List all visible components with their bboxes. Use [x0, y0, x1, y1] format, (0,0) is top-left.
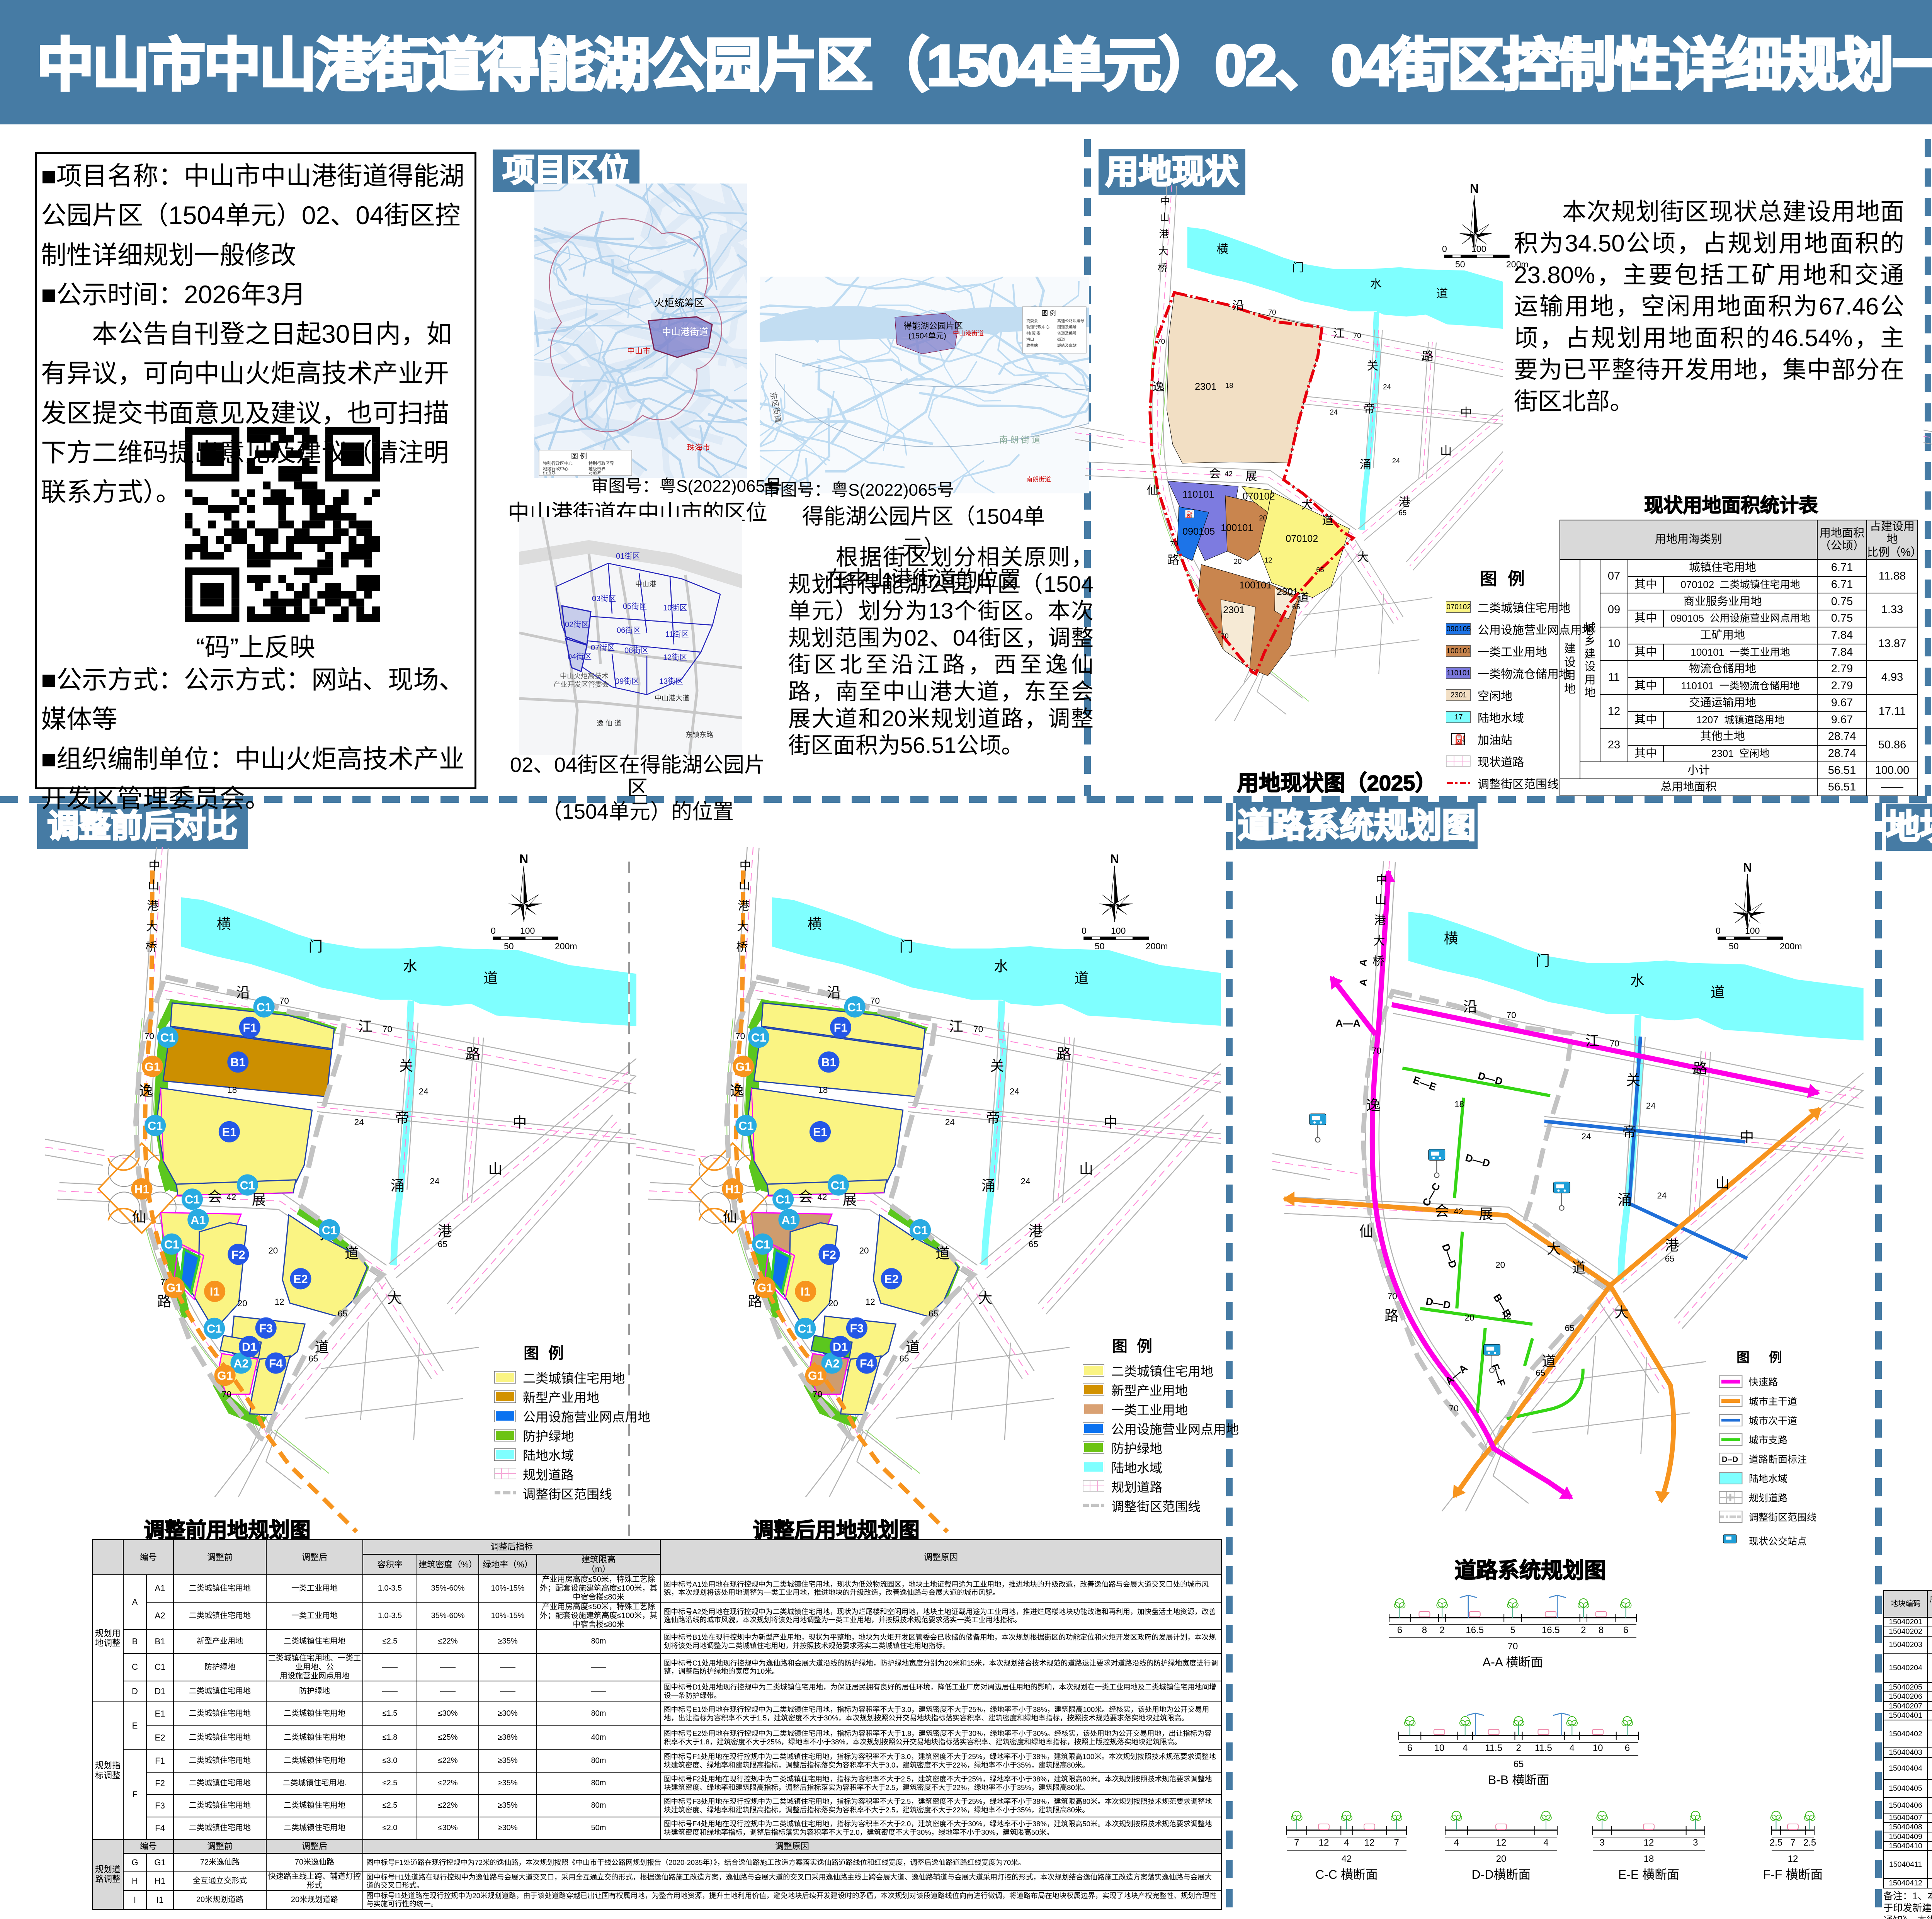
svg-text:110101: 110101 [1182, 489, 1214, 500]
svg-text:A1: A1 [781, 1214, 796, 1227]
svg-text:得能湖公园片区: 得能湖公园片区 [903, 321, 963, 331]
svg-text:D—D: D—D [1464, 1152, 1491, 1169]
svg-text:D--D: D--D [1722, 1455, 1738, 1464]
svg-text:逸 仙 道: 逸 仙 道 [597, 719, 621, 727]
svg-text:C1: C1 [160, 1031, 175, 1044]
svg-text:F4: F4 [269, 1357, 283, 1370]
svg-text:8: 8 [1599, 1625, 1604, 1635]
svg-text:12: 12 [1788, 1854, 1798, 1864]
svg-text:C1: C1 [207, 1322, 222, 1336]
svg-text:中山港: 中山港 [635, 580, 656, 588]
svg-text:2.5: 2.5 [1803, 1837, 1816, 1848]
svg-text:100101: 100101 [1239, 580, 1272, 591]
svg-text:E—E: E—E [1412, 1074, 1438, 1093]
svg-text:4: 4 [1454, 1837, 1459, 1848]
svg-text:70: 70 [1508, 1641, 1518, 1652]
svg-text:13街区: 13街区 [659, 677, 683, 686]
svg-text:C1: C1 [738, 1119, 753, 1132]
svg-text:中山火炬高技术: 中山火炬高技术 [560, 672, 609, 680]
svg-text:A: A [1357, 978, 1369, 987]
svg-text:H1: H1 [134, 1183, 149, 1196]
svg-text:F3: F3 [259, 1322, 273, 1335]
svg-text:(1504单元): (1504单元) [908, 331, 946, 340]
svg-text:F2: F2 [231, 1248, 245, 1261]
svg-text:F—F: F—F [1489, 1362, 1507, 1388]
svg-text:D-D横断面: D-D横断面 [1472, 1868, 1531, 1882]
svg-text:5: 5 [1510, 1625, 1515, 1635]
svg-text:10街区: 10街区 [663, 603, 687, 612]
svg-text:2: 2 [1581, 1625, 1586, 1635]
svg-text:12街区: 12街区 [663, 653, 687, 662]
svg-text:3: 3 [1599, 1837, 1604, 1848]
svg-text:G1: G1 [735, 1060, 751, 1073]
svg-text:中山港街道: 中山港街道 [662, 327, 708, 337]
svg-text:02街区: 02街区 [565, 620, 589, 629]
svg-text:F1: F1 [243, 1021, 257, 1034]
svg-text:A: A [1357, 958, 1369, 967]
svg-text:G1: G1 [217, 1369, 233, 1382]
svg-text:C1: C1 [257, 1001, 272, 1014]
svg-text:D1: D1 [242, 1340, 257, 1353]
svg-text:省道及编号: 省道及编号 [1057, 331, 1077, 336]
svg-text:3: 3 [1693, 1837, 1698, 1848]
svg-text:C1: C1 [148, 1119, 163, 1132]
svg-text:6: 6 [1623, 1625, 1628, 1635]
svg-text:6: 6 [1625, 1743, 1630, 1753]
svg-text:G1: G1 [166, 1281, 182, 1294]
svg-text:4: 4 [1344, 1837, 1349, 1848]
svg-text:2301: 2301 [1223, 605, 1245, 615]
svg-text:C1: C1 [831, 1179, 846, 1192]
svg-text:C1: C1 [240, 1179, 255, 1192]
svg-text:F3: F3 [850, 1322, 864, 1335]
svg-text:01街区: 01街区 [616, 552, 640, 561]
svg-text:7: 7 [1790, 1837, 1795, 1848]
svg-text:09街区: 09街区 [615, 677, 639, 686]
svg-text:03街区: 03街区 [592, 594, 616, 603]
svg-text:国道及编号: 国道及编号 [1057, 325, 1077, 330]
svg-text:4: 4 [1463, 1743, 1468, 1753]
svg-text:轨道行政中心: 轨道行政中心 [1026, 325, 1049, 330]
svg-text:B1: B1 [230, 1056, 245, 1069]
svg-text:城轨及车站: 城轨及车站 [1057, 343, 1077, 348]
svg-text:4: 4 [1543, 1837, 1548, 1848]
svg-text:F4: F4 [860, 1357, 874, 1370]
svg-text:H1: H1 [725, 1183, 740, 1196]
svg-text:C1: C1 [185, 1193, 200, 1206]
svg-text:E1: E1 [222, 1126, 236, 1139]
svg-text:C1: C1 [164, 1238, 179, 1251]
svg-text:特别行政区中心: 特别行政区中心 [543, 461, 573, 466]
svg-text:11.5: 11.5 [1535, 1743, 1552, 1753]
svg-text:⛽: ⛽ [1454, 734, 1466, 745]
svg-text:65: 65 [1514, 1759, 1524, 1769]
svg-text:图 例: 图 例 [1042, 310, 1056, 317]
svg-text:收费站: 收费站 [1026, 343, 1038, 348]
svg-text:南 朗 街 道: 南 朗 街 道 [999, 435, 1040, 445]
svg-text:E2: E2 [293, 1273, 308, 1286]
svg-text:C1: C1 [776, 1193, 791, 1206]
svg-text:G1: G1 [145, 1060, 160, 1073]
svg-text:G1: G1 [808, 1369, 824, 1382]
svg-text:070102: 070102 [1243, 491, 1275, 502]
svg-text:F1: F1 [834, 1021, 848, 1034]
svg-text:I1: I1 [210, 1285, 220, 1299]
svg-text:2: 2 [1439, 1625, 1444, 1635]
svg-text:E-E 横断面: E-E 横断面 [1618, 1868, 1679, 1882]
svg-text:8: 8 [1422, 1625, 1427, 1635]
svg-text:11街区: 11街区 [665, 630, 689, 639]
svg-text:⛽: ⛽ [1186, 511, 1193, 518]
svg-text:04街区: 04街区 [568, 652, 592, 661]
svg-text:11.5: 11.5 [1485, 1743, 1502, 1753]
svg-text:I1: I1 [801, 1285, 811, 1299]
svg-text:产业开发区管委会: 产业开发区管委会 [553, 681, 609, 688]
svg-text:7: 7 [1294, 1837, 1299, 1848]
svg-text:E2: E2 [884, 1273, 898, 1286]
svg-text:C1: C1 [913, 1224, 928, 1237]
svg-text:18: 18 [1644, 1854, 1654, 1864]
svg-text:C1: C1 [322, 1224, 337, 1237]
svg-text:090105: 090105 [1182, 526, 1215, 537]
svg-text:10: 10 [1434, 1743, 1445, 1753]
svg-text:070102: 070102 [1286, 533, 1318, 544]
svg-text:C-C 横断面: C-C 横断面 [1315, 1868, 1378, 1882]
svg-text:2: 2 [1516, 1743, 1521, 1753]
svg-text:珠海市: 珠海市 [687, 443, 710, 452]
svg-text:D—D: D—D [1440, 1242, 1459, 1270]
svg-text:12: 12 [1319, 1837, 1329, 1848]
svg-text:街道办: 街道办 [543, 470, 556, 475]
svg-text:06街区: 06街区 [617, 626, 641, 635]
svg-text:12: 12 [1364, 1837, 1375, 1848]
svg-text:F2: F2 [822, 1248, 836, 1261]
svg-text:中山市: 中山市 [627, 347, 650, 355]
svg-text:12: 12 [1496, 1837, 1507, 1848]
svg-text:D1: D1 [833, 1340, 848, 1353]
svg-text:G1: G1 [757, 1281, 773, 1294]
svg-text:C1: C1 [751, 1031, 766, 1044]
svg-text:火炬统筹区: 火炬统筹区 [654, 297, 704, 309]
svg-text:6: 6 [1407, 1743, 1412, 1753]
svg-text:20: 20 [1496, 1854, 1507, 1864]
svg-text:2.5: 2.5 [1770, 1837, 1782, 1848]
svg-text:东镇东路: 东镇东路 [685, 731, 713, 739]
svg-text:16.5: 16.5 [1466, 1625, 1484, 1635]
svg-text:C1: C1 [847, 1001, 862, 1014]
svg-text:100101: 100101 [1221, 523, 1253, 534]
svg-text:特别行政区界: 特别行政区界 [588, 461, 614, 466]
svg-text:B-B 横断面: B-B 横断面 [1488, 1773, 1549, 1787]
svg-text:12: 12 [1644, 1837, 1654, 1848]
svg-text:贷委会: 贷委会 [1026, 318, 1038, 323]
svg-text:E1: E1 [813, 1126, 827, 1139]
svg-text:07街区: 07街区 [591, 643, 615, 652]
svg-text:B1: B1 [821, 1056, 836, 1069]
svg-text:C1: C1 [798, 1322, 813, 1336]
svg-text:A2: A2 [233, 1357, 248, 1370]
svg-text:村(居)委: 村(居)委 [1026, 331, 1041, 336]
svg-text:图 例: 图 例 [571, 452, 587, 460]
svg-text:2301: 2301 [1195, 381, 1216, 392]
svg-text:A—A: A—A [1335, 1017, 1361, 1029]
svg-text:05街区: 05街区 [623, 602, 647, 611]
svg-text:中山港大道: 中山港大道 [655, 694, 689, 702]
svg-text:A2: A2 [825, 1357, 840, 1370]
svg-text:A1: A1 [190, 1214, 206, 1227]
svg-text:街道: 街道 [1057, 337, 1065, 342]
svg-text:港口: 港口 [1026, 337, 1034, 342]
svg-text:08街区: 08街区 [624, 646, 648, 655]
svg-text:F-F 横断面: F-F 横断面 [1763, 1868, 1823, 1882]
svg-text:A-A 横断面: A-A 横断面 [1483, 1655, 1543, 1669]
svg-text:10: 10 [1593, 1743, 1603, 1753]
svg-text:4: 4 [1570, 1743, 1575, 1753]
svg-text:42: 42 [1342, 1854, 1352, 1864]
svg-text:C1: C1 [755, 1238, 770, 1251]
svg-text:16.5: 16.5 [1542, 1625, 1560, 1635]
svg-text:7: 7 [1394, 1837, 1399, 1848]
svg-text:6: 6 [1397, 1625, 1402, 1635]
svg-text:中山港街道: 中山港街道 [953, 330, 984, 337]
